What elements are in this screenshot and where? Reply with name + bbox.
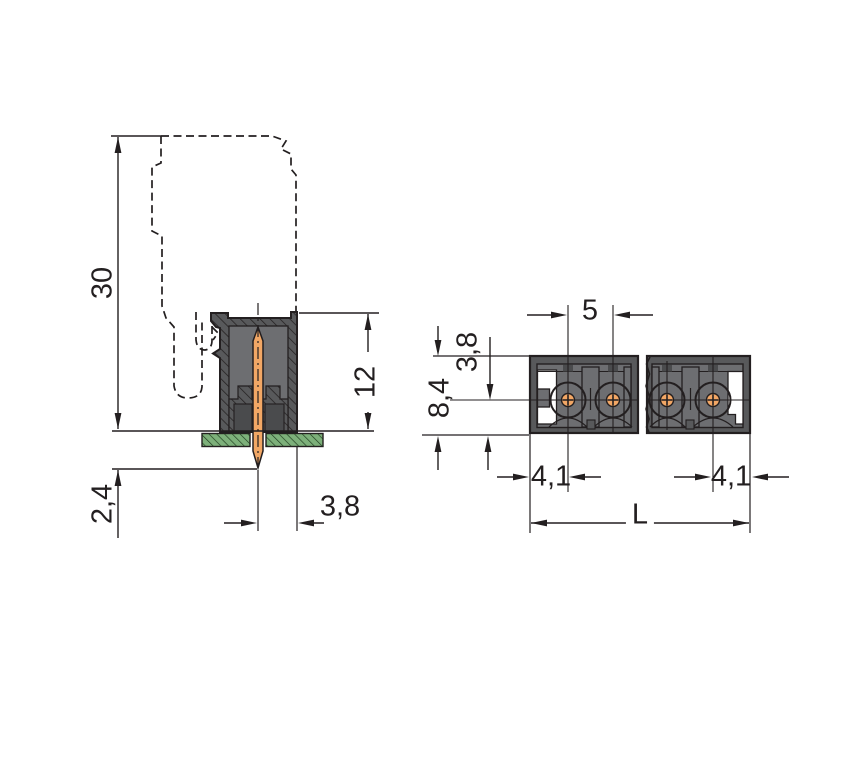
- dim-label-overall-depth: 8,4: [426, 378, 455, 418]
- top-view: [450, 305, 750, 492]
- segment-a-bottom-notch: [587, 420, 595, 429]
- segment-b-bottom-notch: [686, 420, 694, 429]
- arrow-12-up: [365, 314, 372, 330]
- segment-b-edge-rib: [652, 367, 659, 427]
- arrow-L-right: [733, 520, 749, 527]
- arrow-30-down: [115, 413, 122, 429]
- dim-label-header-height: 12: [352, 366, 381, 398]
- side-view: [152, 136, 323, 468]
- arrow-12-down: [365, 413, 372, 429]
- dim-label-pin-protrusion: 2,4: [89, 484, 118, 524]
- arrow-38-top-up: [485, 436, 492, 452]
- arrow-84-up: [435, 436, 442, 452]
- arrow-30-up: [115, 137, 122, 153]
- arrow-41-right-a: [695, 474, 711, 481]
- arrow-84-down: [435, 340, 442, 356]
- dim-label-pin-to-edge: 3,8: [320, 493, 360, 522]
- dim-label-overall-height: 30: [89, 267, 118, 299]
- arrow-5-right: [551, 312, 567, 319]
- dim-label-last-pin-offset: 4,1: [711, 463, 751, 492]
- arrow-38-side-left: [298, 520, 314, 527]
- dim-label-first-pin-offset: 4,1: [531, 463, 571, 492]
- arrow-41-right-b: [752, 474, 768, 481]
- arrow-38-side-right: [241, 520, 257, 527]
- arrow-38-top-down: [487, 384, 494, 400]
- dim-label-overall-length: L: [626, 501, 654, 530]
- arrow-41-left-a: [513, 474, 529, 481]
- segment-a-key-tab: [538, 389, 550, 407]
- dim-label-pin-pitch: 5: [582, 297, 598, 326]
- arrow-41-left-b: [569, 474, 585, 481]
- arrow-5-left: [614, 312, 630, 319]
- pcb-left-hatch: [202, 434, 250, 447]
- side-contact-block-left: [234, 404, 252, 431]
- pcb-right-hatch: [266, 434, 323, 447]
- technical-drawing-canvas: 30 12 2,4 3,8 5 3,8 8,4 4,1 4,1 L: [0, 0, 846, 774]
- side-contact-block-right: [265, 404, 284, 431]
- dim-label-top-to-pin-center: 3,8: [454, 332, 483, 372]
- arrow-L-left: [531, 520, 547, 527]
